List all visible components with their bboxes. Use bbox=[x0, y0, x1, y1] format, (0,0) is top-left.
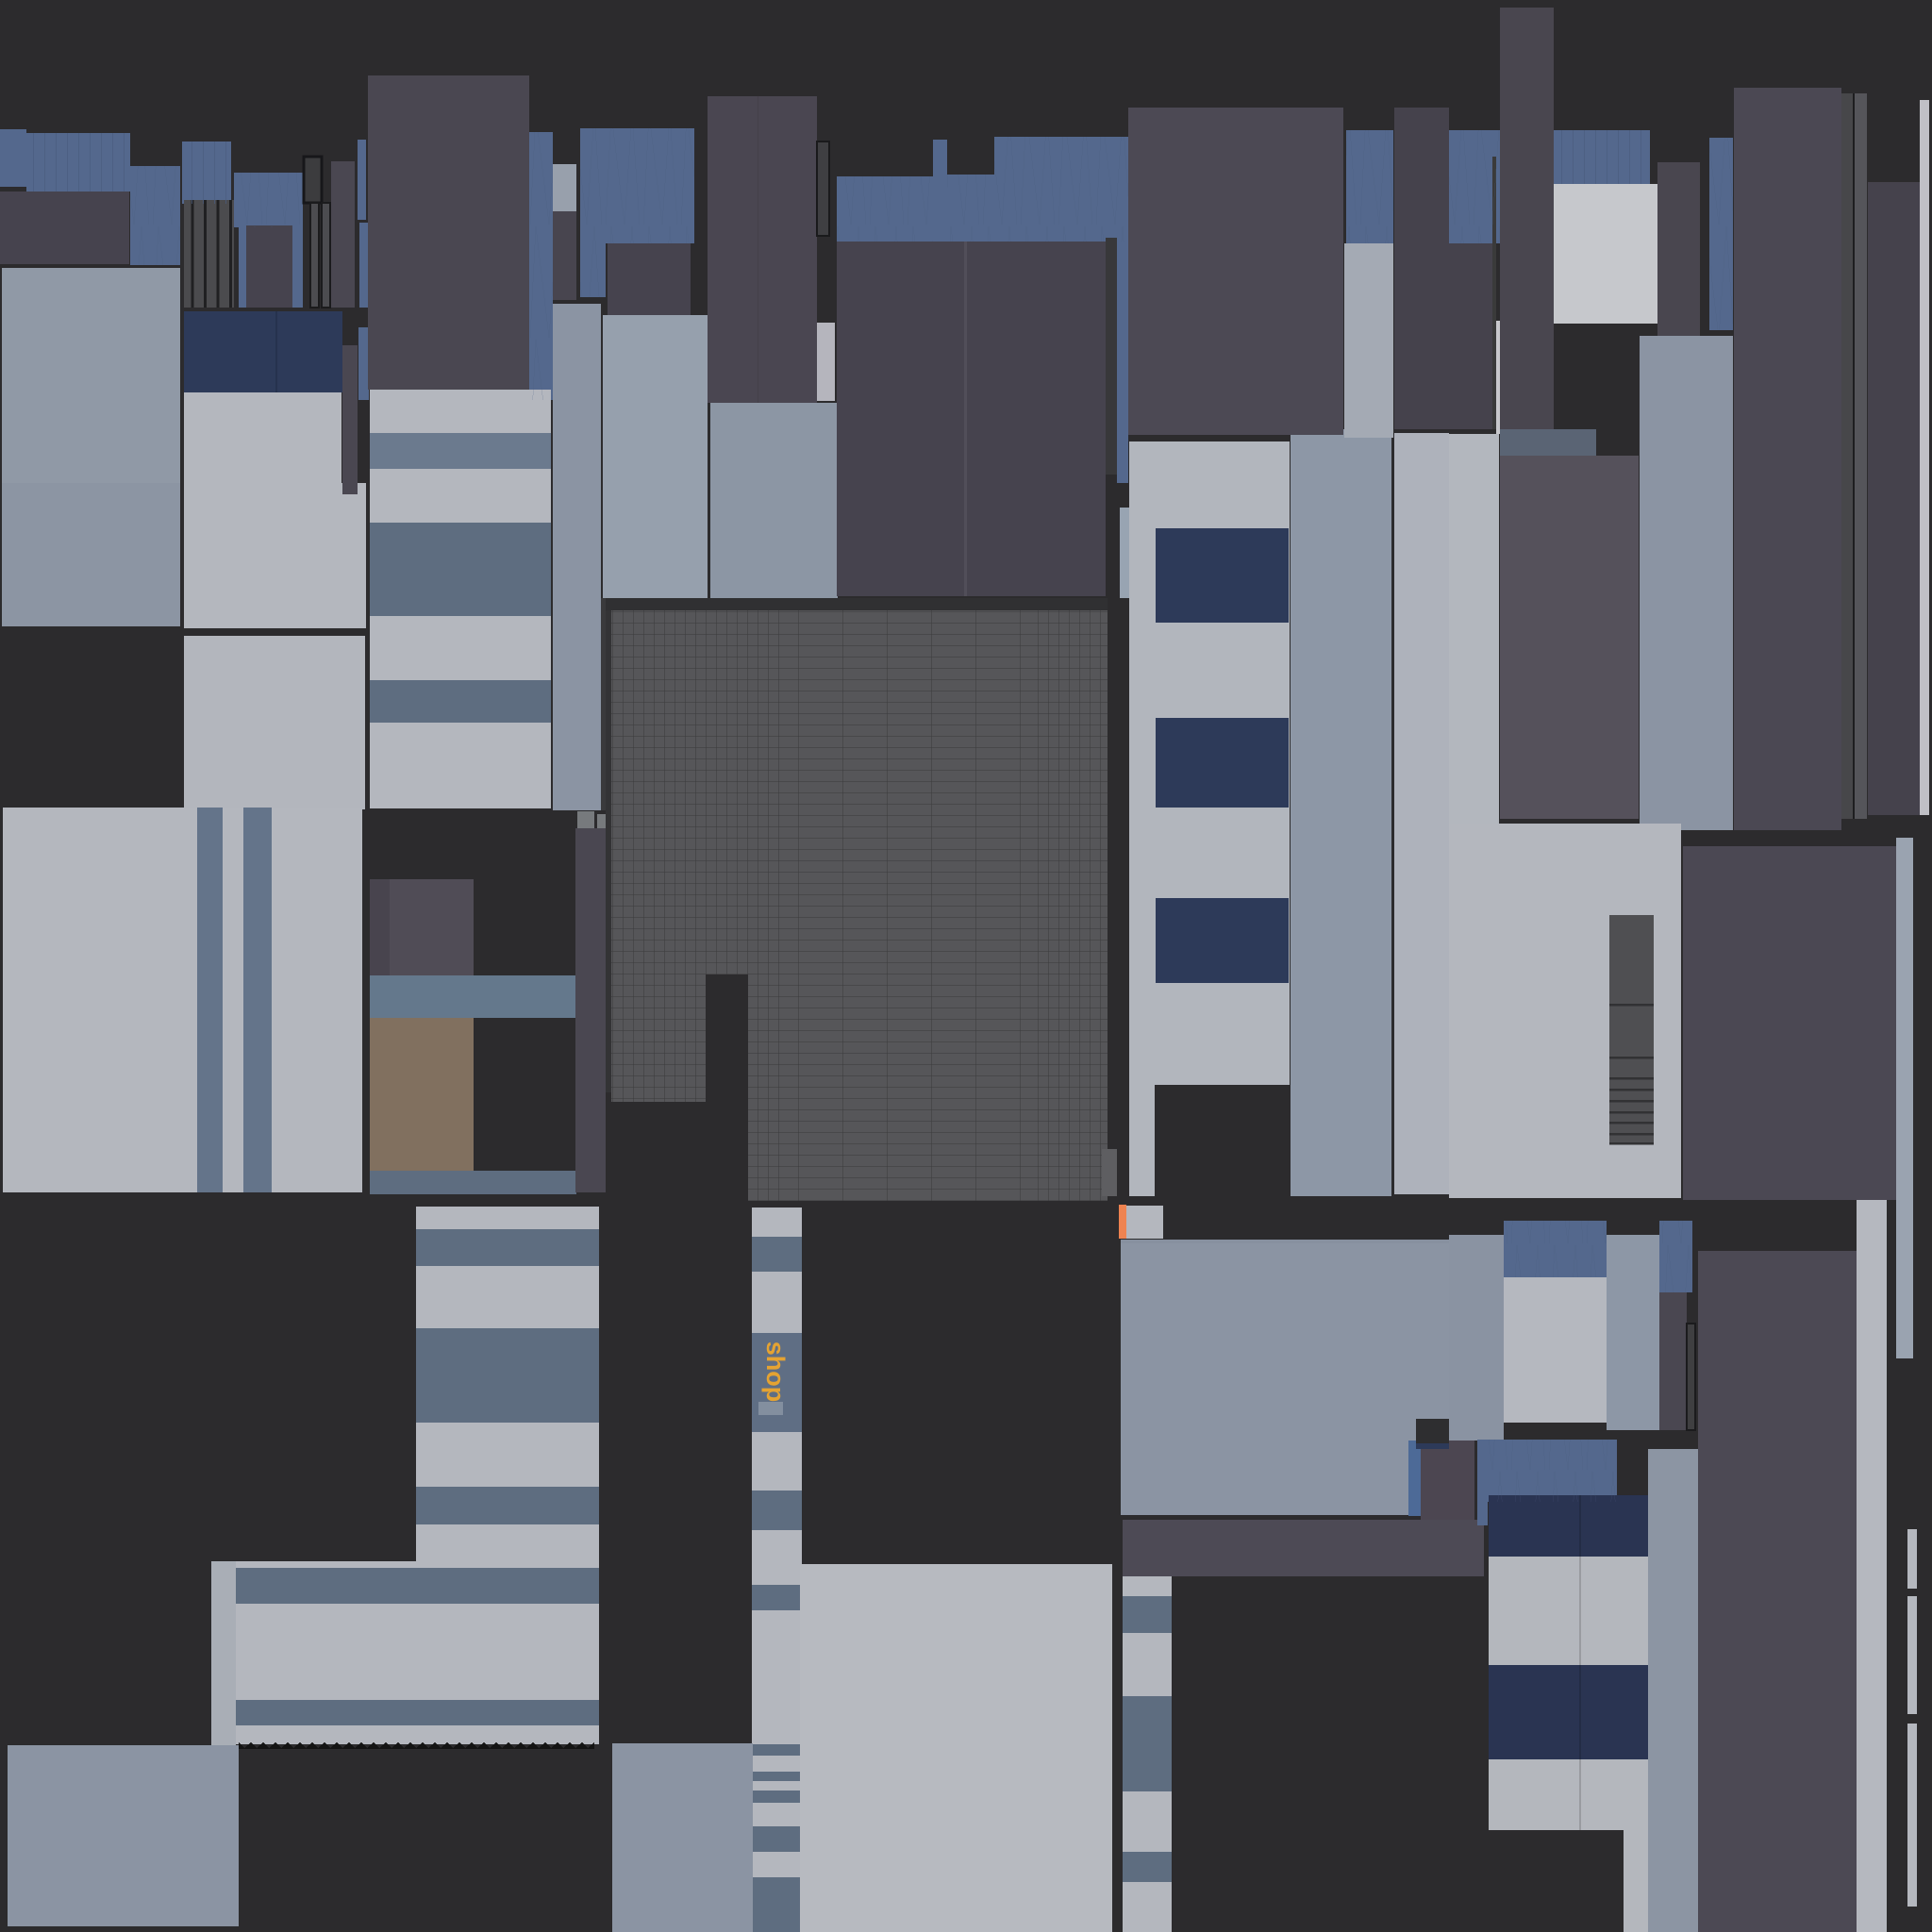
svg-text:shop: shop bbox=[761, 1341, 790, 1403]
